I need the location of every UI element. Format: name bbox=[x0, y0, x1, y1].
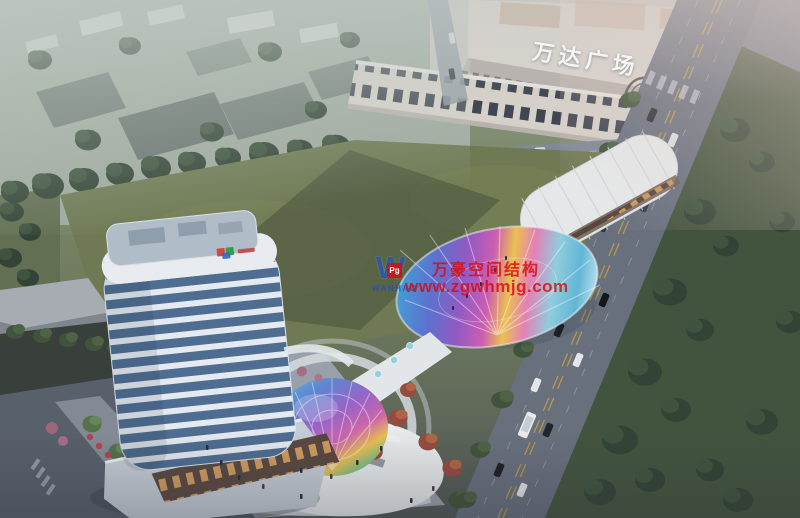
aerial-render: 万达广场 W Pg WANHAO 万豪空间结构 www.zgwhmjg.com bbox=[0, 0, 800, 518]
color-grade bbox=[0, 0, 800, 518]
scene-art bbox=[0, 0, 800, 518]
